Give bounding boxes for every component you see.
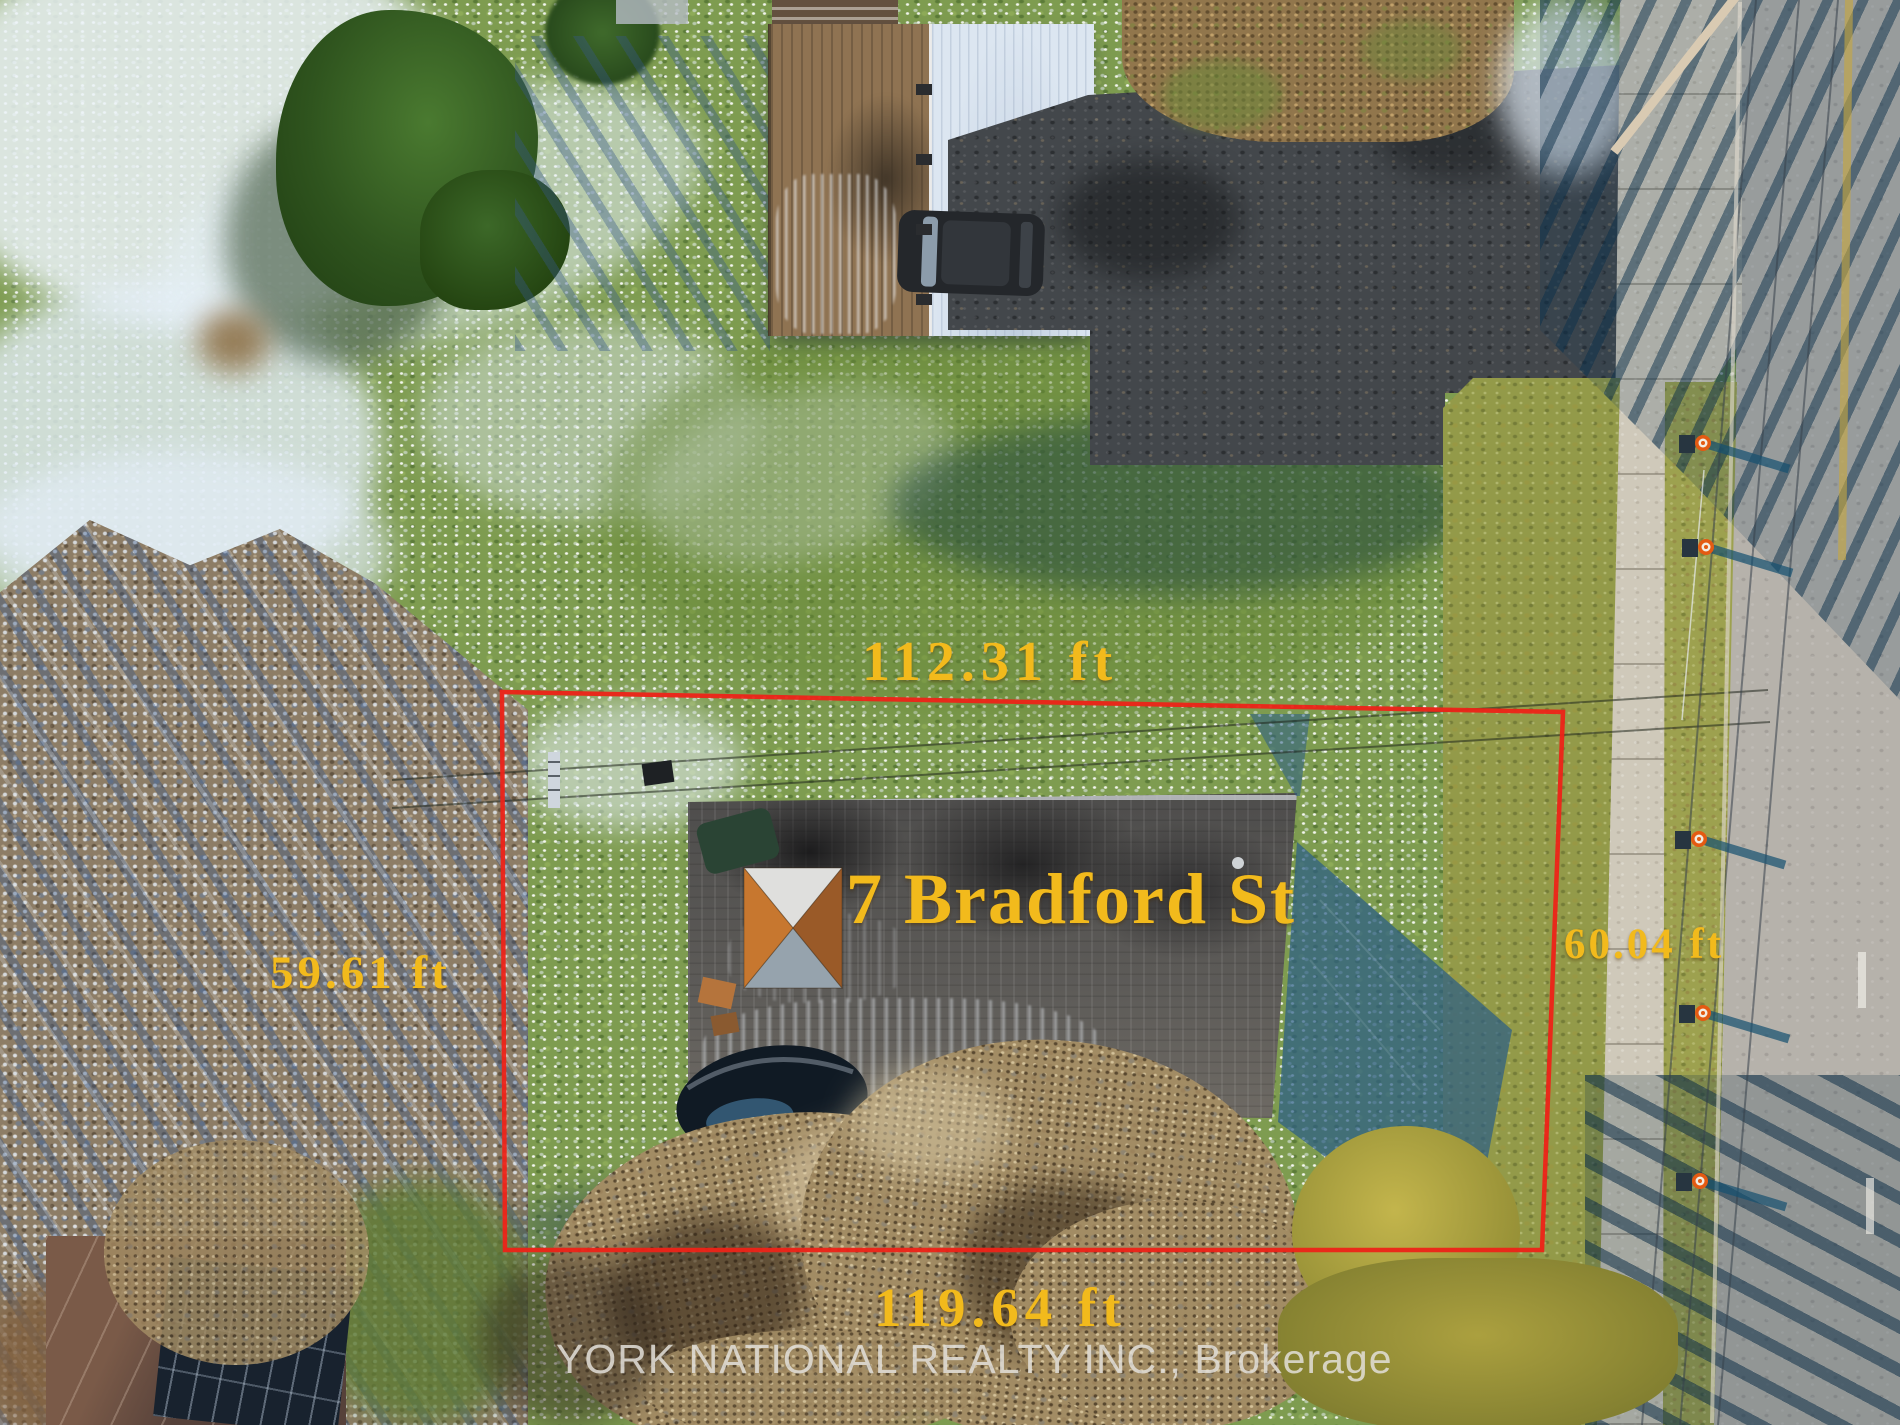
utility-wires xyxy=(392,690,1770,808)
traffic-cones xyxy=(1675,435,1792,1207)
dimension-label-bottom: 119.64 ft xyxy=(874,1276,1127,1339)
shed-debris xyxy=(698,977,740,1036)
garden-shed xyxy=(744,868,842,988)
lane-dash xyxy=(1866,1178,1874,1234)
traffic-cone xyxy=(1679,1005,1789,1039)
dimension-label-top: 112.31 ft xyxy=(862,630,1118,694)
traffic-cone xyxy=(1676,1173,1786,1207)
yellow-edge-line xyxy=(1842,0,1849,560)
power-lines xyxy=(1642,0,1838,1425)
parked-car xyxy=(897,210,1046,297)
utility-pole xyxy=(1614,0,1738,152)
brokerage-watermark: YORK NATIONAL REALTY INC., Brokerage xyxy=(556,1336,1393,1383)
bare-tree-canopy xyxy=(104,1140,369,1365)
dimension-label-right: 60.04 ft xyxy=(1564,920,1724,969)
address-label: 7 Bradford St xyxy=(846,858,1296,941)
lane-dash xyxy=(1858,952,1866,1008)
traffic-cone xyxy=(1682,539,1792,573)
aerial-photo: 112.31 ft 7 Bradford St 59.61 ft 60.04 f… xyxy=(0,0,1900,1425)
traffic-cone xyxy=(1679,435,1789,469)
dimension-label-left: 59.61 ft xyxy=(270,946,451,1000)
yard-objects xyxy=(548,752,781,876)
